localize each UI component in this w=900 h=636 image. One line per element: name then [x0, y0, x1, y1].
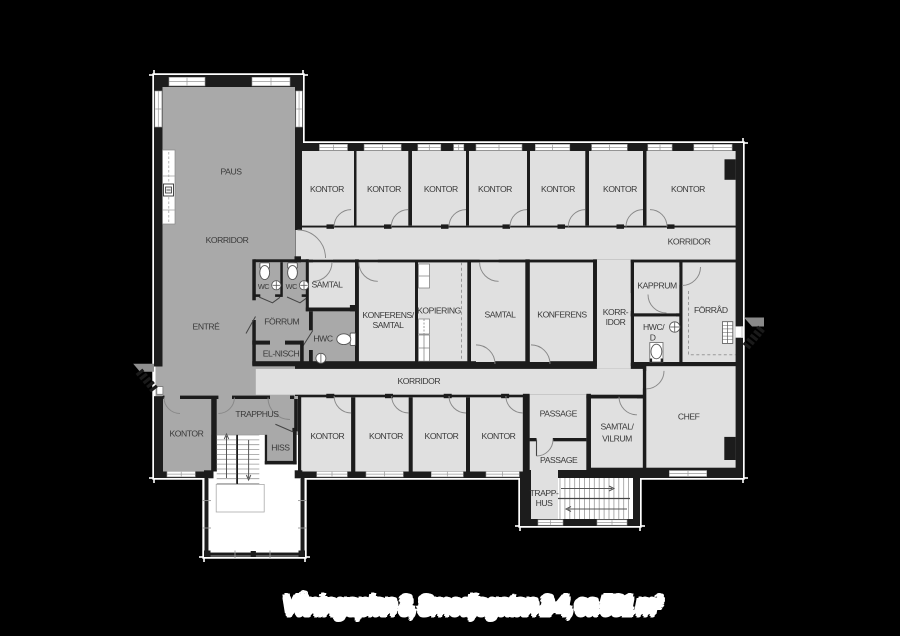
svg-text:SAMTAL: SAMTAL — [311, 279, 343, 289]
svg-text:KONTOR: KONTOR — [310, 431, 344, 441]
svg-text:PASSAGE: PASSAGE — [540, 455, 578, 465]
svg-text:KONTOR: KONTOR — [369, 431, 403, 441]
svg-text:HUS: HUS — [536, 498, 554, 508]
svg-text:KONTOR: KONTOR — [482, 431, 516, 441]
svg-text:KONTOR: KONTOR — [541, 184, 575, 194]
svg-text:KONTOR: KONTOR — [424, 184, 458, 194]
svg-text:KONFERENS: KONFERENS — [537, 309, 587, 319]
svg-text:KORRIDOR: KORRIDOR — [206, 235, 249, 245]
svg-text:KORRIDOR: KORRIDOR — [397, 376, 440, 386]
svg-text:KONTOR: KONTOR — [603, 184, 637, 194]
svg-text:KONTOR: KONTOR — [478, 184, 512, 194]
svg-text:WC: WC — [286, 282, 297, 291]
svg-text:KORRIDOR: KORRIDOR — [668, 236, 711, 246]
svg-text:PASSAGE: PASSAGE — [540, 408, 578, 418]
svg-text:KONTOR: KONTOR — [425, 431, 459, 441]
svg-text:D: D — [650, 332, 656, 342]
svg-text:CHEF: CHEF — [678, 411, 700, 421]
svg-text:KONTOR: KONTOR — [169, 428, 203, 438]
svg-text:KAPPRUM: KAPPRUM — [637, 281, 677, 291]
svg-text:IDOR: IDOR — [606, 317, 626, 327]
svg-text:KONTOR: KONTOR — [310, 184, 344, 194]
svg-text:HWC: HWC — [313, 333, 332, 343]
svg-text:WC: WC — [258, 282, 269, 291]
svg-text:KONTOR: KONTOR — [671, 184, 705, 194]
svg-text:Våningsplan 3, Smedjegatan 2-4: Våningsplan 3, Smedjegatan 2-4, ca 581 m… — [286, 594, 665, 619]
svg-text:PAUS: PAUS — [221, 166, 243, 176]
svg-text:FÖRRÅD: FÖRRÅD — [694, 305, 728, 315]
svg-text:SAMTAL: SAMTAL — [372, 320, 404, 330]
svg-text:HWC/: HWC/ — [643, 322, 665, 332]
svg-text:KONFERENS/: KONFERENS/ — [362, 310, 414, 320]
svg-text:TRAPPHUS: TRAPPHUS — [235, 409, 279, 419]
svg-text:SAMTAL/: SAMTAL/ — [601, 422, 635, 432]
svg-text:ENTRÉ: ENTRÉ — [193, 321, 221, 331]
svg-text:KOPIERING: KOPIERING — [417, 306, 461, 316]
svg-text:HISS: HISS — [271, 443, 290, 453]
svg-text:VILRUM: VILRUM — [602, 434, 632, 444]
svg-text:KONTOR: KONTOR — [367, 184, 401, 194]
svg-text:EL-NISCH: EL-NISCH — [263, 348, 300, 358]
svg-text:KORR-: KORR- — [603, 307, 629, 317]
svg-text:FÖRRUM: FÖRRUM — [264, 317, 299, 327]
svg-text:TRAPP-: TRAPP- — [530, 488, 559, 498]
svg-text:SAMTAL: SAMTAL — [484, 309, 516, 319]
